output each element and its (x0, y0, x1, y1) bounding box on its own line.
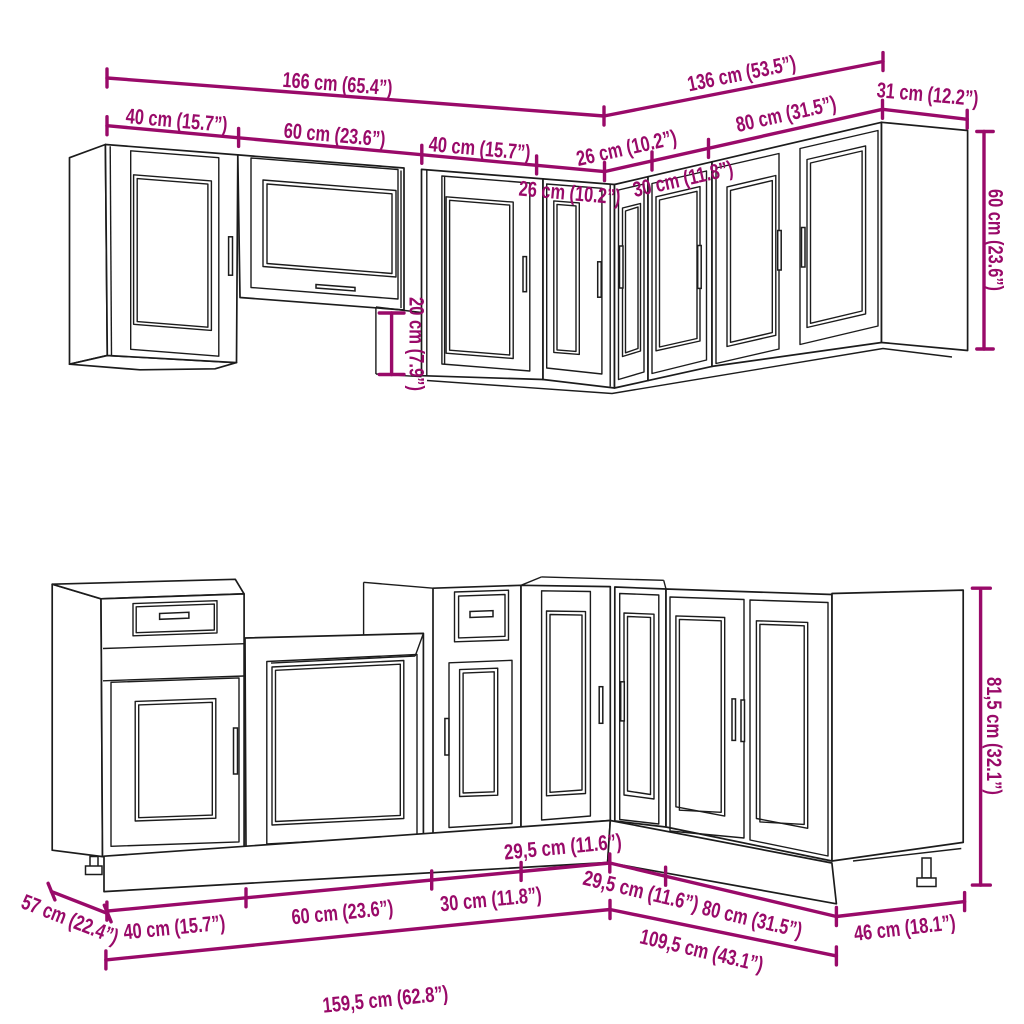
svg-text:60 cm (23.6”): 60 cm (23.6”) (984, 189, 1008, 291)
svg-text:20 cm (7.9”): 20 cm (7.9”) (405, 297, 429, 391)
svg-text:81,5 cm (32.1”): 81,5 cm (32.1”) (982, 677, 1006, 795)
